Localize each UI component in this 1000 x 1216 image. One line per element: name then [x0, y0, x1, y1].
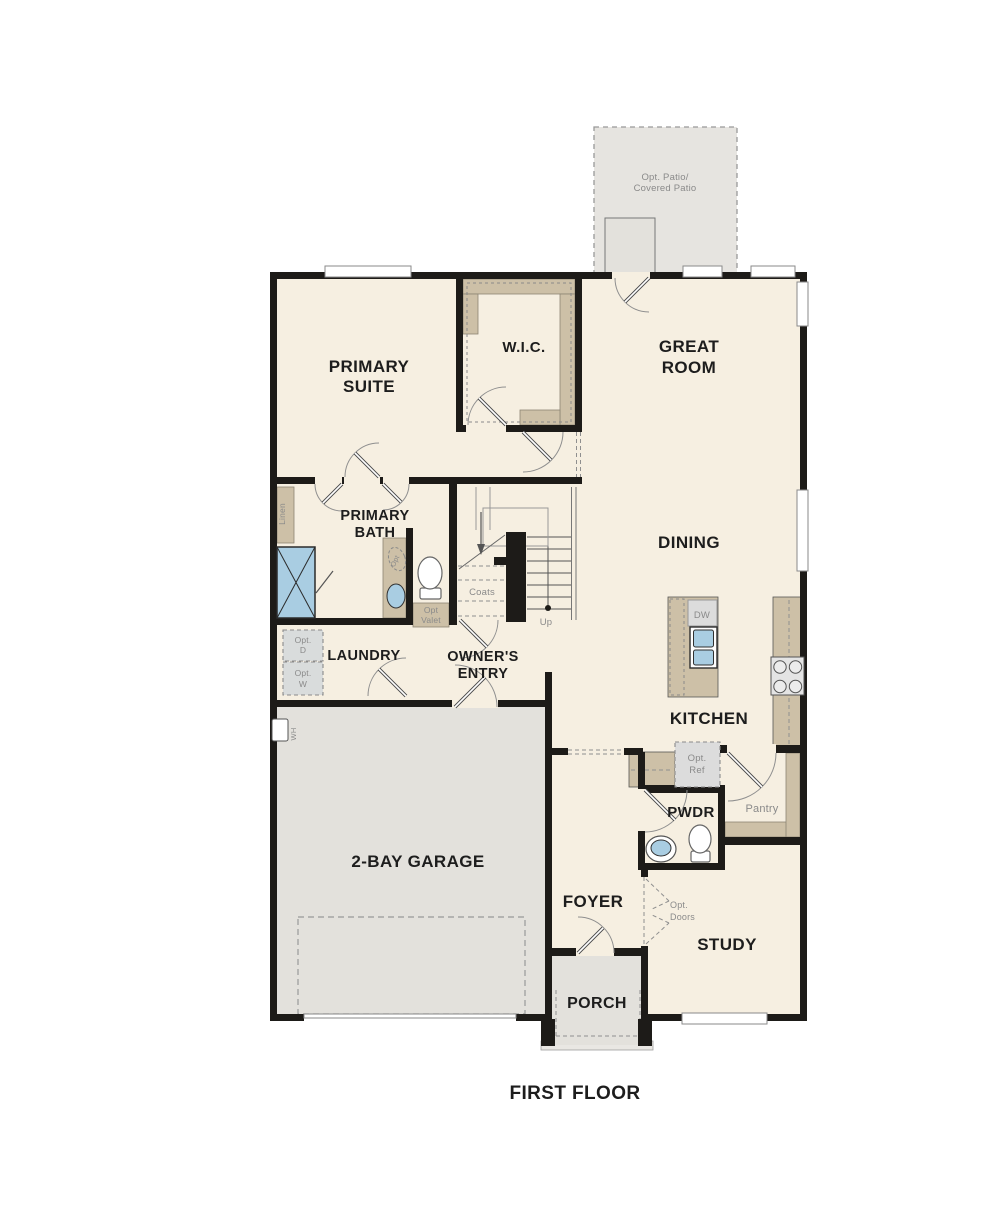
window [751, 266, 795, 277]
optional-patio [594, 127, 737, 274]
pwdr-label: PWDR [667, 804, 714, 821]
linen-label: Linen [277, 503, 287, 525]
wic-shelf-top [463, 279, 575, 294]
window [304, 1014, 516, 1018]
door-opening [315, 476, 342, 485]
door-opening [466, 424, 506, 433]
wall-segment [494, 557, 507, 565]
wall-segment [641, 946, 648, 1014]
door-opening [637, 789, 646, 831]
opt-doors-label-line2: Doors [670, 912, 695, 922]
floor-plan-svg: Opt. Patio/ Covered Patio PRIMARY SUITE … [0, 0, 1000, 1216]
wall-segment [638, 863, 725, 870]
wic-label: W.I.C. [502, 339, 545, 356]
laundry-label: LAUNDRY [327, 648, 400, 664]
opt-d-label-line1: Opt. [295, 635, 312, 645]
patio-label-line2: Covered Patio [634, 183, 697, 194]
porch-label: PORCH [567, 995, 627, 1012]
coats-label: Coats [469, 587, 495, 598]
cooktop-burner [789, 661, 801, 673]
wall-segment [270, 700, 552, 707]
patio-stoop [605, 218, 655, 273]
wall-segment [552, 948, 576, 956]
door-opening [612, 272, 650, 279]
cooktop [771, 657, 804, 695]
water-heater [272, 719, 288, 741]
wall-segment [800, 279, 807, 1021]
wall-segment [638, 1019, 652, 1046]
water-heater-label: WH [289, 728, 298, 741]
opt-ref-label-line1: Opt. [688, 753, 707, 764]
wall-segment [541, 1019, 555, 1046]
door-opening [727, 744, 776, 754]
island-sink-basin-2 [694, 650, 714, 665]
bath-toilet [418, 557, 442, 599]
door-opening [344, 476, 380, 485]
wic-shelf-right [560, 294, 575, 425]
wall-segment [718, 837, 807, 845]
opt-w-label-line1: Opt. [295, 668, 312, 678]
up-label: Up [540, 617, 553, 628]
island-sink-basin-1 [694, 630, 714, 647]
pwdr-toilet [689, 825, 711, 862]
opt-ref-label-line2: Ref [689, 765, 705, 776]
pantry-label: Pantry [746, 803, 779, 815]
primary-suite-label-line1: PRIMARY [329, 357, 410, 376]
floor-caption: FIRST FLOOR [509, 1083, 640, 1104]
study-label: STUDY [697, 935, 757, 954]
wic-shelf-bottom [520, 410, 560, 425]
kitchen-label: KITCHEN [670, 709, 748, 728]
opt-valet-label-line1: Opt [424, 605, 439, 615]
wall-segment [641, 870, 648, 877]
wall-segment [552, 748, 568, 755]
wall-segment [545, 672, 552, 1021]
great-room-label-line2: ROOM [662, 358, 716, 377]
primary-bath-label-line1: PRIMARY [340, 508, 409, 524]
opt-valet-label-line2: Valet [421, 615, 441, 625]
wic-shelf-left [463, 294, 478, 334]
patio-label-line1: Opt. Patio/ [641, 172, 688, 183]
opt-doors-label-line1: Opt. [670, 900, 688, 910]
window [683, 266, 722, 277]
wall-segment [506, 532, 526, 622]
cooktop-burner [789, 680, 801, 692]
pwdr-sink [646, 836, 676, 862]
wall-segment [270, 618, 410, 625]
stair-rail-newel [545, 605, 551, 611]
window [797, 490, 808, 571]
dishwasher-label: DW [694, 610, 710, 621]
floor-plan-page: Opt. Patio/ Covered Patio PRIMARY SUITE … [0, 0, 1000, 1216]
wall-segment [449, 477, 582, 484]
primary-bath-label-line2: BATH [355, 525, 396, 541]
cooktop-burner [774, 680, 786, 692]
owners-entry-label-line2: ENTRY [458, 666, 509, 682]
wall-segment [575, 279, 582, 425]
pantry-shelf-right [786, 753, 800, 837]
wall-segment [449, 484, 457, 625]
wall-segment [270, 1014, 304, 1021]
wall-segment [614, 948, 647, 956]
dining-label: DINING [658, 533, 720, 552]
bath-sink [387, 584, 405, 608]
primary-suite-label-line2: SUITE [343, 377, 395, 396]
wall-segment [270, 279, 277, 1021]
wall-segment [406, 528, 413, 625]
owners-entry-label-line1: OWNER'S [447, 649, 519, 665]
window [325, 266, 411, 277]
opt-w-label-line2: W [299, 679, 307, 689]
door-opening [406, 655, 413, 695]
opt-d-label-line2: D [300, 645, 306, 655]
great-room-label-line1: GREAT [659, 337, 719, 356]
wall-segment [456, 279, 463, 432]
window [797, 282, 808, 326]
foyer-label: FOYER [563, 892, 624, 911]
window [682, 1013, 767, 1024]
cooktop-burner [774, 661, 786, 673]
wall-segment [718, 785, 725, 870]
garage-label: 2-BAY GARAGE [351, 852, 484, 871]
door-opening [383, 476, 409, 485]
